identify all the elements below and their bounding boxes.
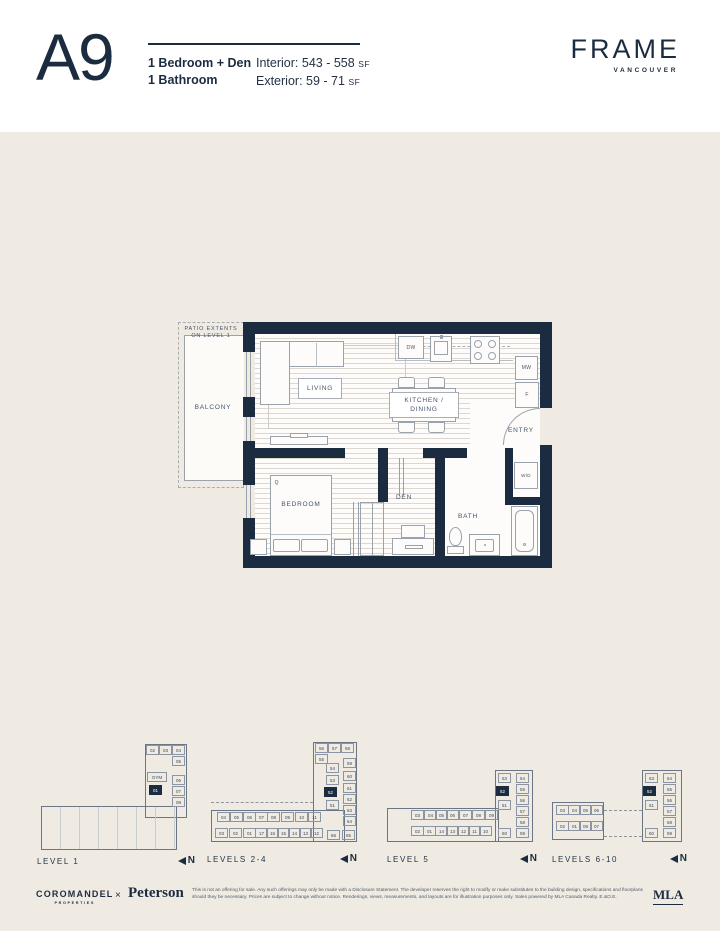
keyplan-unit-cell: 09 — [281, 812, 294, 822]
stove — [470, 336, 500, 364]
dishwasher: DW — [398, 336, 424, 359]
brand-logo: FRAME VANCOUVER — [571, 36, 681, 74]
keyplan-connector-line — [604, 836, 642, 837]
patio-note: PATIO EXTENTS ON LEVEL 1 — [180, 326, 242, 340]
keyplan-unit-cell: 56 — [516, 795, 529, 805]
bath-label: BATH — [451, 513, 485, 520]
den-label: DEN — [390, 494, 418, 501]
keyplan-unit-cell: 07 — [172, 786, 185, 796]
keyplan-unit-cell: 06 — [590, 805, 603, 815]
kitchen-dining-label: KITCHEN / DINING — [389, 392, 459, 418]
keyplan-unit-cell: 62 — [343, 794, 356, 804]
keyplan-unit-cell: 54 — [326, 763, 339, 773]
keyplan-unit-cell: 02 — [146, 745, 159, 755]
dining-chair — [398, 422, 415, 433]
keyplan-unit-cell: 04 — [172, 745, 185, 755]
header: A9 1 Bedroom + Den 1 Bathroom Interior: … — [0, 0, 720, 132]
fridge: F — [515, 382, 539, 408]
closet — [360, 502, 384, 556]
keyplan-unit-cell: 10 — [479, 826, 492, 836]
keyplan-unit-cell: 57 — [663, 806, 676, 816]
tv — [290, 433, 308, 438]
wall — [505, 448, 513, 497]
logo-separator: × — [115, 890, 121, 901]
wall — [243, 322, 255, 352]
balcony-label: BALCONY — [184, 404, 242, 411]
north-arrow-icon — [670, 855, 678, 863]
keyplan-unit-cell: 53 — [326, 775, 339, 785]
mla-logo: MLA — [653, 887, 683, 905]
keyplan-unit-cell: 58 — [341, 743, 354, 753]
bed-queen-mark: Q — [273, 480, 281, 486]
keyplan-unit-cell: 55 — [663, 784, 676, 794]
keyplan-unit-cell: GYM — [147, 772, 167, 782]
pillow — [301, 539, 328, 552]
keyplan-level-1: 02030405GYM06010708 LEVEL 1 N — [35, 742, 195, 866]
unit-areas: Interior: 543 - 558 SF Exterior: 59 - 71… — [256, 55, 370, 91]
brand-city: VANCOUVER — [571, 67, 681, 74]
balcony-door-glazing — [246, 352, 251, 397]
keyplan-unit-cell: 60 — [498, 828, 511, 838]
north-arrow: N — [520, 853, 537, 864]
keyplan-unit-cell: 60 — [645, 828, 658, 838]
keyplan-unit-cell: 07 — [459, 810, 472, 820]
legal-disclaimer: This is not an offering for sale. Any su… — [192, 888, 644, 901]
interior-area: Interior: 543 - 558 SF — [256, 55, 370, 73]
bathroom-config: 1 Bathroom — [148, 72, 251, 89]
keyplan-terrace-line — [211, 802, 313, 803]
desk-chair — [401, 525, 425, 538]
counter-edge — [395, 334, 396, 360]
keyplan-connector-line — [604, 810, 642, 811]
north-arrow-icon — [178, 857, 186, 865]
bath-door-gap — [467, 448, 505, 458]
vanity-sink — [469, 534, 500, 556]
keyplan-levels-6-10: 030405060201080753545255565157586059 LEV… — [550, 740, 687, 864]
bathtub — [511, 506, 538, 556]
keyplan-unit-cell: 51 — [645, 800, 658, 810]
keyplan-unit-cell: 03 — [215, 828, 228, 838]
keyplan-levels-2-4: 5657585554595360526162516364666504050607… — [205, 740, 357, 864]
keyplan-unit-cell: 64 — [343, 816, 356, 826]
keyplan-unit-cell: 06 — [172, 775, 185, 785]
closet-door — [353, 502, 359, 556]
wall — [540, 322, 552, 408]
keyplan-unit-cell: 66 — [327, 830, 340, 840]
wall — [243, 556, 552, 568]
keyplan-unit-cell: 60 — [343, 771, 356, 781]
window — [246, 417, 251, 441]
nightstand — [334, 539, 351, 555]
sofa-chaise — [260, 341, 290, 405]
washer-dryer: W/D — [514, 462, 538, 489]
wall — [423, 448, 467, 458]
keyplan-unit-cell: 02 — [229, 828, 242, 838]
toilet-tank — [447, 546, 464, 554]
wall — [243, 397, 255, 417]
keyplan-unit-cell: 52 — [643, 786, 656, 796]
north-arrow-icon — [340, 855, 348, 863]
keyplan-unit-cell: 59 — [343, 758, 356, 768]
north-arrow: N — [340, 853, 357, 864]
wall — [505, 497, 552, 505]
desk — [392, 538, 434, 555]
pillow — [273, 539, 300, 552]
keyplan-unit-cell: 08 — [472, 810, 485, 820]
nightstand — [250, 539, 267, 555]
keyplan-unit-cell: 63 — [343, 805, 356, 815]
keyplan-unit-cell: 59 — [663, 828, 676, 838]
keyplan-unit-cell: 05 — [230, 812, 243, 822]
kitchen-sink — [430, 336, 452, 362]
keyplan-unit-cell: 08 — [267, 812, 280, 822]
brand-name: FRAME — [571, 36, 681, 63]
north-arrow: N — [670, 853, 687, 864]
keyplan-building-outline — [41, 806, 177, 850]
keyplan-unit-cell: 56 — [663, 795, 676, 805]
keyplan-unit-cell: 58 — [516, 817, 529, 827]
keyplan-unit-cell: 01 — [149, 785, 162, 795]
keyplan-unit-cell: 07 — [590, 821, 603, 831]
keyplan-label: LEVEL 1 — [37, 857, 79, 866]
keyplan-unit-cell: 56 — [315, 743, 328, 753]
plan-code: A9 — [36, 24, 113, 90]
bedroom-config: 1 Bedroom + Den — [148, 55, 251, 72]
keyplan-unit-cell: 04 — [217, 812, 230, 822]
bedroom-label: BEDROOM — [270, 501, 332, 508]
keyplan-unit-cell: 53 — [498, 773, 511, 783]
keyplan-unit-cell: 03 — [411, 810, 424, 820]
keyplan-unit-cell: 10 — [295, 812, 308, 822]
keyplan-unit-cell: 54 — [663, 773, 676, 783]
dining-chair — [428, 422, 445, 433]
keyplan-unit-cell: 12 — [310, 828, 323, 838]
wall — [255, 448, 345, 458]
living-label: LIVING — [298, 378, 342, 399]
exterior-area: Exterior: 59 - 71 SF — [256, 73, 370, 91]
keyplan-unit-cell: 05 — [172, 756, 185, 766]
keyplan-unit-cell: 61 — [343, 783, 356, 793]
wall — [243, 322, 552, 334]
keyplan-unit-cell: 65 — [342, 830, 355, 840]
keyplan-unit-cell: 59 — [516, 828, 529, 838]
sf-unit: SF — [358, 59, 370, 69]
keyplan-unit-cell: 52 — [496, 786, 509, 796]
dining-chair — [398, 377, 415, 388]
keyplan-unit-cell: 57 — [328, 743, 341, 753]
den-door — [399, 458, 404, 496]
entry-label: ENTRY — [504, 427, 538, 434]
wall — [435, 458, 445, 556]
coromandel-name: COROMANDEL — [36, 889, 114, 899]
unit-config: 1 Bedroom + Den 1 Bathroom — [148, 55, 251, 89]
header-divider — [148, 43, 360, 45]
sf-unit: SF — [348, 77, 360, 87]
floorplan-sheet: A9 1 Bedroom + Den 1 Bathroom Interior: … — [0, 0, 720, 931]
keyplan-unit-cell: 06 — [446, 810, 459, 820]
keyplan-label: LEVELS 6-10 — [552, 855, 618, 864]
keyplan-label: LEVEL 5 — [387, 855, 429, 864]
keyplan-unit-cell: 03 — [159, 745, 172, 755]
keyplan-unit-cell: 11 — [308, 812, 321, 822]
wall — [540, 445, 552, 568]
keyplan-level-5: 5354525556515758605903040506070809020114… — [385, 740, 537, 864]
keyplan-unit-cell: 57 — [516, 806, 529, 816]
coromandel-sub: PROPERTIES — [36, 901, 114, 905]
keyplan-unit-cell: 09 — [485, 810, 498, 820]
dining-chair — [428, 377, 445, 388]
wall — [243, 441, 255, 485]
microwave: MW — [515, 356, 538, 380]
keyplan-unit-cell: 51 — [498, 800, 511, 810]
peterson-logo: Peterson — [128, 885, 184, 902]
toilet-bowl — [449, 527, 462, 546]
keyplan-unit-cell: 54 — [516, 773, 529, 783]
north-arrow-icon — [520, 855, 528, 863]
keyplan-unit-cell: 08 — [172, 797, 185, 807]
keyplan-unit-cell: 51 — [326, 800, 339, 810]
keyplan-unit-cell: 55 — [516, 784, 529, 794]
floor-plan: PATIO EXTENTS ON LEVEL 1 BALCONY — [170, 315, 560, 575]
keyplan-unit-cell: 58 — [663, 817, 676, 827]
coromandel-logo: COROMANDEL PROPERTIES — [36, 889, 114, 905]
bedroom-window — [246, 485, 251, 518]
wall — [378, 448, 388, 502]
keyplan-unit-cell: 52 — [324, 787, 337, 797]
keyplan-label: LEVELS 2-4 — [207, 855, 267, 864]
north-arrow: N — [178, 855, 195, 866]
keyplan-unit-cell: 53 — [645, 773, 658, 783]
